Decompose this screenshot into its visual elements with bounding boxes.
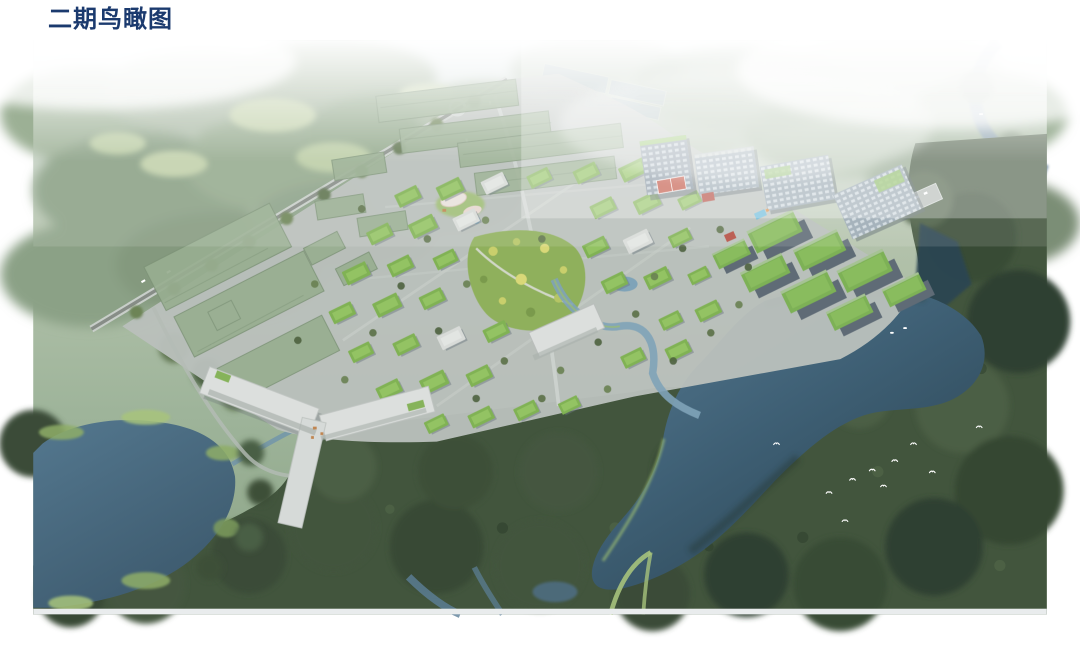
- bottom-strip: [33, 609, 1047, 615]
- fog-overlay: [0, 40, 1080, 246]
- slide: 二期鸟瞰图: [0, 0, 1080, 650]
- aerial-rendering: [0, 40, 1080, 650]
- page-title: 二期鸟瞰图: [48, 8, 173, 32]
- header: 二期鸟瞰图: [0, 0, 1080, 40]
- aerial-rendering-figure: [0, 40, 1080, 650]
